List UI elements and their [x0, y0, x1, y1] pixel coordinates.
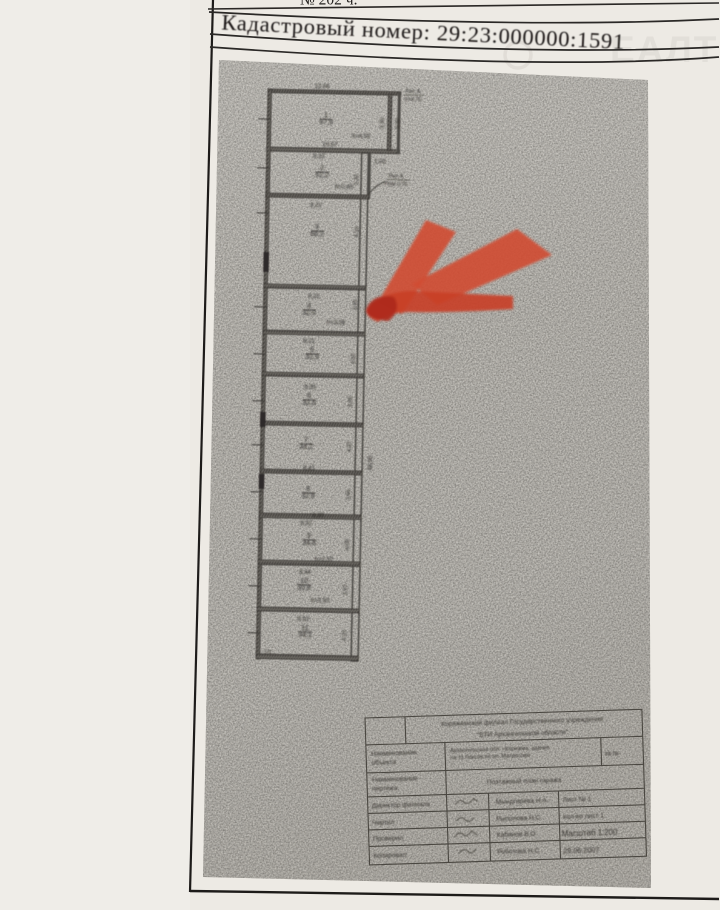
- svg-text:4,23: 4,23: [342, 630, 348, 641]
- svg-text:3,30: 3,30: [395, 118, 401, 129]
- svg-text:34,2: 34,2: [299, 444, 313, 451]
- svg-text:32,9: 32,9: [305, 354, 319, 361]
- svg-text:8,41: 8,41: [303, 466, 315, 472]
- svg-text:52,2: 52,2: [315, 172, 329, 179]
- svg-text:10,57: 10,57: [322, 142, 338, 148]
- svg-text:h=4,75: h=4,75: [404, 97, 421, 103]
- svg-text:8,32: 8,32: [313, 154, 325, 160]
- svg-text:h=3,08: h=3,08: [327, 320, 346, 326]
- svg-text:12,94: 12,94: [314, 84, 330, 90]
- svg-text:8,53: 8,53: [297, 617, 309, 623]
- svg-text:чертежа: чертежа: [372, 785, 398, 793]
- svg-text:Лист № 1: Лист № 1: [563, 796, 592, 804]
- svg-text:4,07: 4,07: [347, 441, 353, 452]
- svg-text:Рис А: Рис А: [389, 174, 404, 180]
- svg-text:3,30: 3,30: [380, 118, 386, 129]
- svg-text:Чертил: Чертил: [372, 819, 394, 827]
- svg-text:h=2,57: h=2,57: [315, 557, 334, 563]
- svg-text:32,8: 32,8: [301, 493, 315, 500]
- svg-text:6: 6: [307, 393, 311, 400]
- svg-text:5: 5: [310, 347, 314, 354]
- svg-text:8,16: 8,16: [354, 226, 360, 237]
- svg-text:кв.№: кв.№: [605, 750, 619, 757]
- svg-text:h=4,55: h=4,55: [352, 134, 371, 140]
- svg-text:h=3,50: h=3,50: [311, 598, 330, 604]
- svg-text:68,2: 68,2: [310, 231, 324, 238]
- svg-text:3,95: 3,95: [353, 299, 359, 310]
- svg-text:2: 2: [320, 165, 324, 172]
- svg-text:29.06.2007: 29.06.2007: [563, 845, 599, 855]
- svg-text:4: 4: [307, 303, 311, 310]
- svg-text:32,0: 32,0: [302, 310, 316, 317]
- svg-text:8,21: 8,21: [308, 294, 320, 300]
- svg-text:30,8: 30,8: [297, 585, 311, 592]
- svg-text:Кабанов В.О.: Кабанов В.О.: [497, 830, 538, 839]
- svg-text:3,66: 3,66: [346, 489, 352, 500]
- svg-text:2,00: 2,00: [374, 159, 386, 165]
- svg-text:Проверил: Проверил: [373, 835, 404, 843]
- svg-text:8,32: 8,32: [300, 521, 312, 527]
- svg-text:3,30: 3,30: [354, 174, 360, 185]
- svg-text:Рис А: Рис А: [406, 89, 421, 95]
- svg-text:Роботова Н.С.: Роботова Н.С.: [497, 847, 541, 856]
- svg-text:ГЛ: ГЛ: [264, 650, 271, 656]
- svg-text:3: 3: [315, 224, 319, 231]
- svg-text:34,1: 34,1: [298, 632, 312, 639]
- svg-text:h=2,85: h=2,85: [335, 184, 354, 190]
- svg-text:97,9: 97,9: [319, 119, 333, 126]
- svg-text:1: 1: [324, 112, 328, 119]
- svg-text:8,33: 8,33: [312, 513, 324, 519]
- svg-text:объекта: объекта: [371, 758, 396, 767]
- svg-text:2,97: 2,97: [343, 584, 349, 595]
- svg-text:Рыполова Н.С.: Рыполова Н.С.: [496, 814, 542, 822]
- svg-text:Пом 3,75: Пом 3,75: [384, 181, 407, 187]
- svg-text:8,35: 8,35: [304, 385, 316, 391]
- svg-text:48,90: 48,90: [368, 455, 374, 471]
- svg-text:7: 7: [304, 437, 308, 444]
- svg-text:3,87: 3,87: [351, 353, 357, 364]
- svg-text:Копировал: Копировал: [373, 852, 406, 860]
- svg-text:8,21: 8,21: [303, 339, 315, 345]
- svg-text:9: 9: [307, 533, 311, 540]
- svg-text:34,8: 34,8: [302, 540, 316, 547]
- svg-text:8: 8: [306, 486, 310, 493]
- svg-text:8,21: 8,21: [310, 203, 322, 209]
- svg-text:Наименование: Наименование: [372, 775, 418, 783]
- svg-text:Наименование: Наименование: [371, 749, 417, 757]
- svg-text:8,44: 8,44: [299, 570, 311, 576]
- svg-text:кол-во лист 1: кол-во лист 1: [563, 813, 604, 821]
- svg-text:Масштаб 1:200: Масштаб 1:200: [562, 828, 619, 839]
- svg-text:32,6: 32,6: [302, 400, 316, 407]
- svg-text:4,09: 4,09: [345, 539, 351, 550]
- svg-text:3,90: 3,90: [348, 396, 354, 407]
